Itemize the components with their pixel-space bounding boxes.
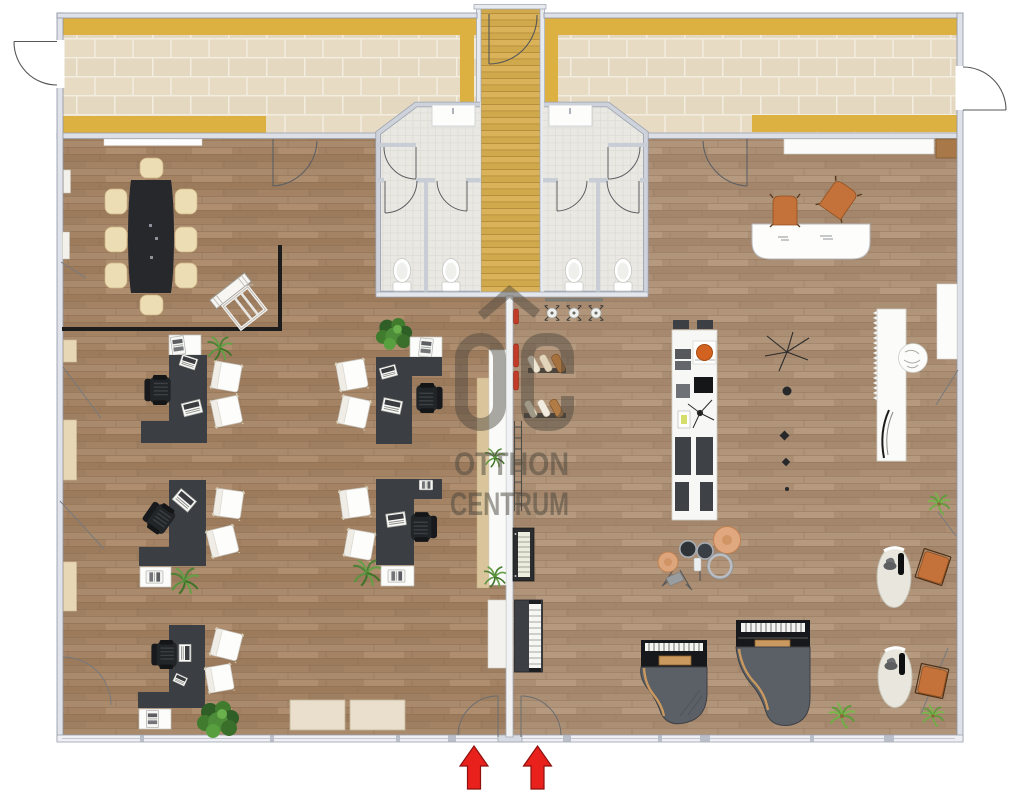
svg-text:OTTHON: OTTHON xyxy=(454,446,569,482)
svg-text:CENTRUM: CENTRUM xyxy=(450,486,569,522)
